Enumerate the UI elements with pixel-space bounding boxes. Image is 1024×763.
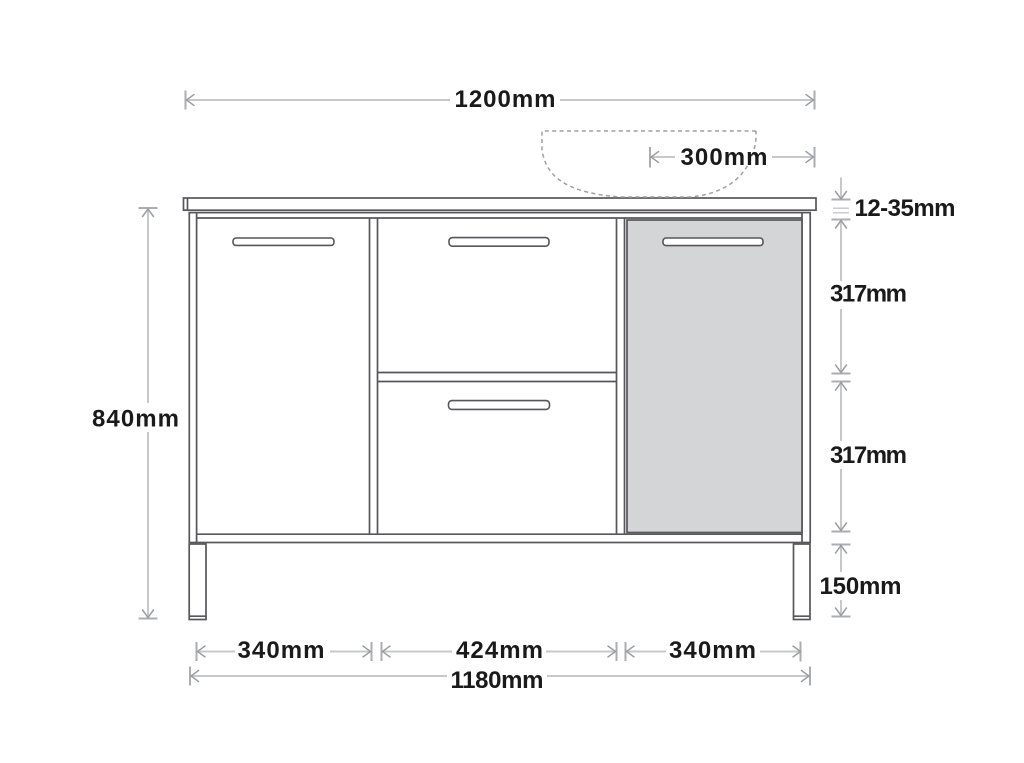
svg-text:840mm: 840mm: [92, 405, 179, 432]
svg-text:300mm: 300mm: [681, 144, 768, 171]
svg-text:317mm: 317mm: [830, 442, 907, 469]
svg-text:340mm: 340mm: [669, 637, 756, 664]
svg-text:424mm: 424mm: [456, 637, 543, 664]
svg-text:340mm: 340mm: [238, 637, 325, 664]
svg-text:150mm: 150mm: [820, 573, 902, 600]
svg-text:1200mm: 1200mm: [455, 86, 556, 113]
svg-text:1180mm: 1180mm: [451, 667, 544, 694]
svg-text:12-35mm: 12-35mm: [855, 195, 956, 222]
svg-text:317mm: 317mm: [830, 281, 907, 308]
